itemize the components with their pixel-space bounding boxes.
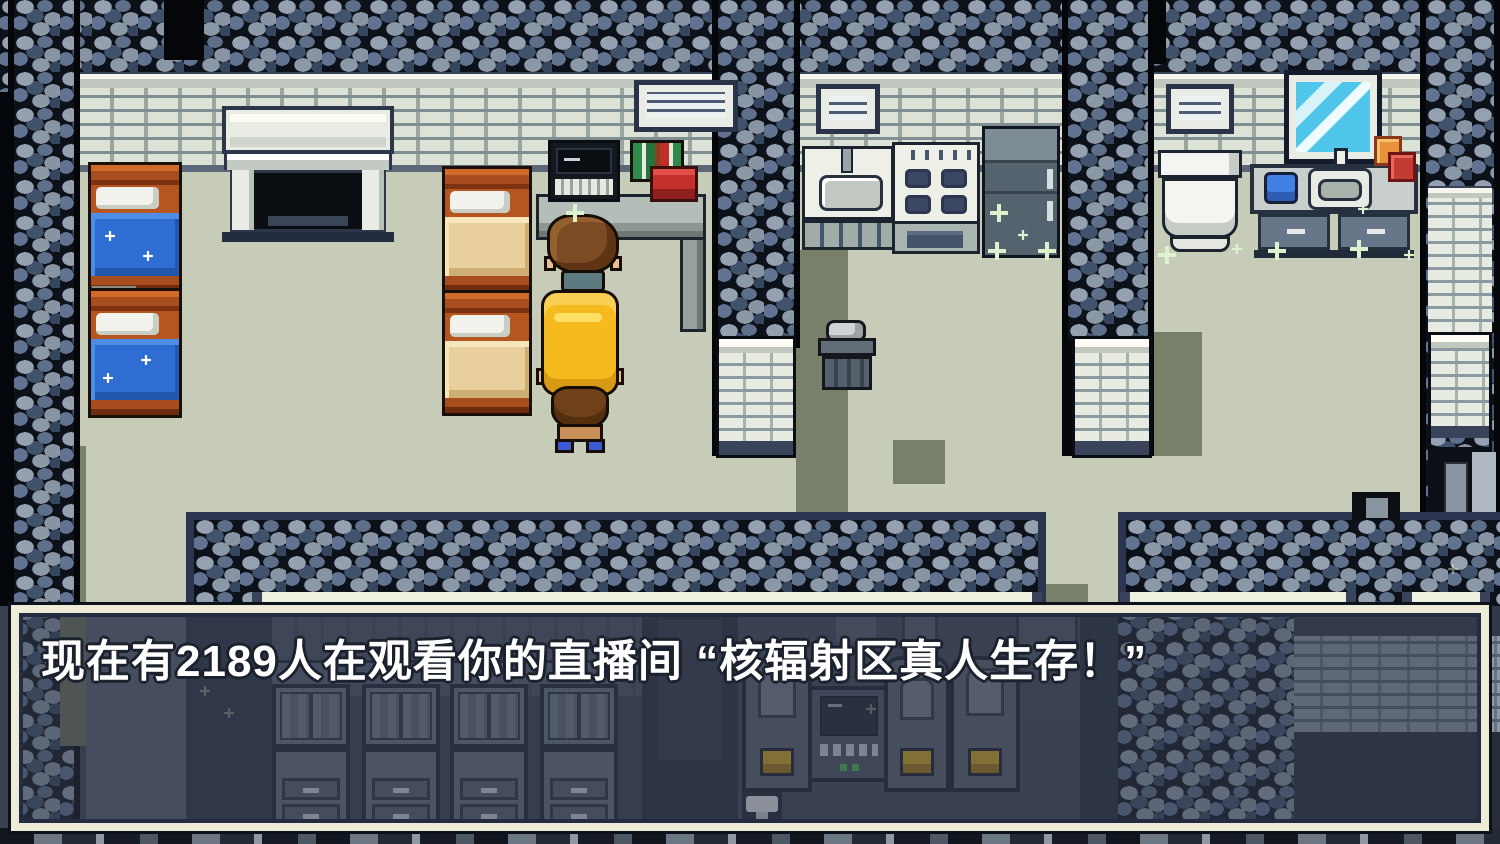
door-panel-light: [1472, 452, 1496, 514]
window: [634, 80, 738, 132]
sink-basin: [819, 175, 883, 211]
dialog-box[interactable]: 现在有2189人在观看你的直播间 “核辐射区真人生存！”: [8, 602, 1492, 834]
kitchen-sink: [802, 146, 894, 220]
dialog-panel: 现在有2189人在观看你的直播间 “核辐射区真人生存！”: [19, 613, 1481, 823]
fireplace-pillar: [362, 170, 384, 230]
fridge-handle: [1047, 169, 1053, 189]
window: [816, 84, 880, 134]
backpack: [541, 290, 619, 396]
trash-can: [816, 318, 880, 394]
rock-pillar-mid2: [1062, 0, 1154, 340]
bed-tan-1: [442, 166, 532, 294]
floor-patch: [1062, 456, 1154, 512]
floor-patch: [712, 456, 800, 512]
fridge-handle: [1047, 201, 1053, 221]
bed-tan-2: [442, 290, 532, 416]
shoe: [555, 439, 574, 453]
fridge: [982, 126, 1060, 258]
game-viewport[interactable]: 现在有2189人在观看你的直播间 “核辐射区真人生存！”: [0, 0, 1500, 844]
desk-leg: [680, 240, 706, 332]
rock-pillar-mid1: [712, 0, 800, 348]
window: [1166, 84, 1234, 134]
player-character: [536, 282, 624, 454]
computer: [548, 140, 620, 202]
stove: [892, 142, 980, 254]
shoe: [586, 439, 605, 453]
wall-cornice: [1428, 186, 1492, 198]
stove-drawer: [907, 231, 963, 248]
vanity-drawer: [1338, 214, 1410, 250]
keyboard: [555, 179, 613, 195]
dialog-text: 现在有2189人在观看你的直播间 “核辐射区真人生存！”: [23, 617, 1477, 697]
rock-pillar-left: [8, 0, 80, 606]
floor-shadow: [893, 440, 945, 484]
bed-blue-1: [88, 162, 182, 294]
hair: [547, 214, 619, 274]
right-wall-bricks: [1428, 198, 1492, 332]
red-box: [650, 166, 698, 202]
vanity-drawer: [1258, 214, 1330, 250]
brick-column: [1428, 332, 1492, 450]
rock-gap: [164, 0, 204, 60]
brick-column: [716, 336, 796, 458]
corridor-left: [84, 512, 186, 606]
mirror: [1284, 70, 1382, 164]
soap: [1264, 172, 1298, 204]
wall-cornice: [80, 72, 712, 88]
door-top-panel: [1366, 498, 1388, 518]
floor-shadow: [1154, 332, 1202, 456]
counter-slats: [802, 220, 906, 250]
bed-blue-2: [88, 288, 182, 418]
brick-column: [1072, 336, 1152, 458]
dialog-frame: 现在有2189人在观看你的直播间 “核辐射区真人生存！”: [11, 605, 1489, 831]
towel-red: [1388, 152, 1416, 182]
door-panel: [1444, 462, 1468, 514]
faucet: [841, 147, 853, 173]
fireplace: [222, 106, 394, 242]
fireplace-pillar: [232, 170, 254, 230]
toilet: [1156, 148, 1246, 258]
